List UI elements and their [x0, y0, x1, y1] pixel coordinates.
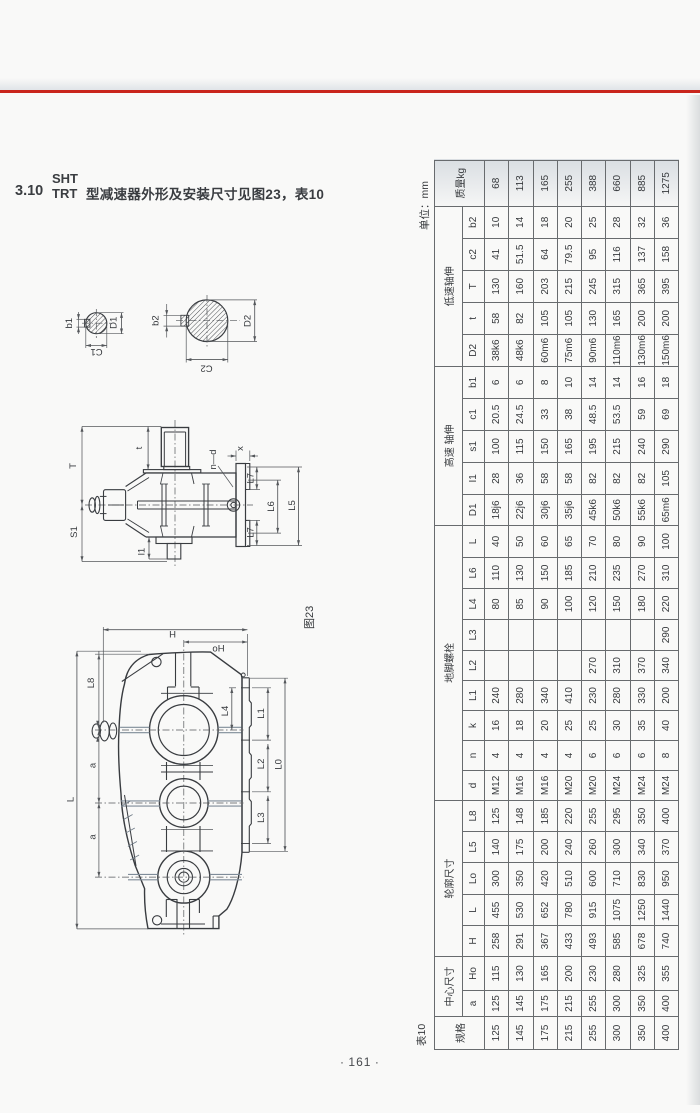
svg-text:S1: S1	[69, 526, 80, 538]
svg-text:L5: L5	[287, 500, 298, 511]
svg-text:L7: L7	[245, 473, 256, 484]
svg-text:L4: L4	[220, 706, 231, 717]
svg-text:L: L	[65, 797, 76, 802]
svg-text:C2: C2	[200, 363, 212, 374]
svg-text:L7: L7	[245, 527, 256, 538]
svg-text:T: T	[68, 463, 79, 469]
svg-text:L8: L8	[86, 678, 97, 689]
svg-text:a: a	[88, 762, 99, 768]
svg-text:b2: b2	[151, 315, 162, 326]
svg-text:n—d: n—d	[208, 449, 219, 469]
svg-text:L1: L1	[256, 708, 267, 719]
svg-text:oH: oH	[212, 644, 224, 655]
svg-text:H: H	[169, 630, 176, 641]
svg-text:D2: D2	[243, 315, 254, 327]
svg-text:D1: D1	[109, 317, 120, 329]
svg-text:C1: C1	[90, 346, 102, 357]
svg-text:L0: L0	[273, 759, 284, 770]
svg-text:x: x	[235, 446, 246, 451]
svg-text:l1: l1	[137, 548, 148, 555]
svg-text:L3: L3	[256, 812, 267, 823]
svg-text:t: t	[134, 446, 145, 449]
svg-text:b1: b1	[64, 318, 75, 329]
svg-text:L2: L2	[256, 759, 267, 770]
svg-text:a: a	[88, 834, 99, 840]
svg-text:L6: L6	[266, 501, 277, 512]
